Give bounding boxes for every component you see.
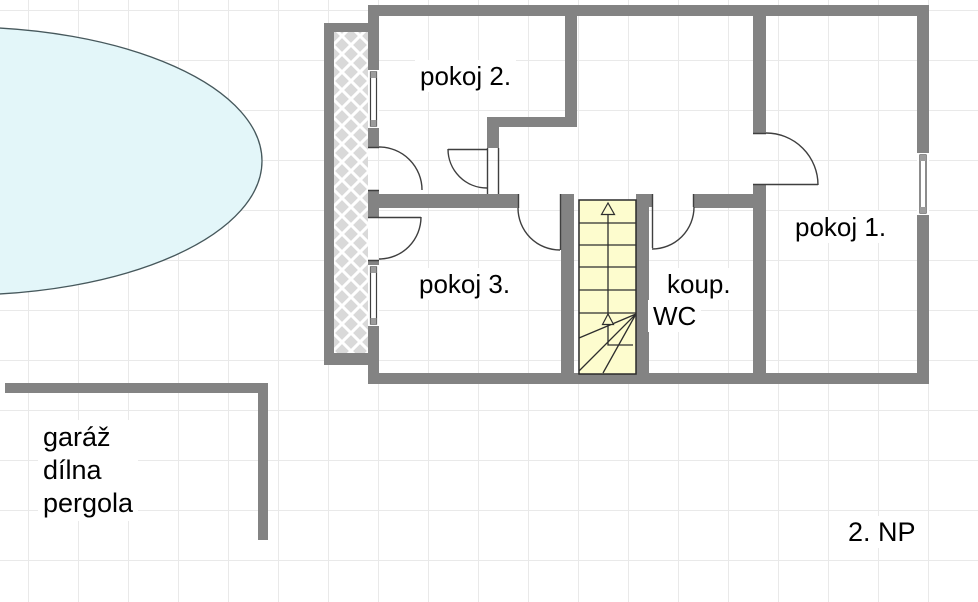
room-label-koupelna: koup. (662, 268, 736, 300)
outbuilding-label-garaz: garáž (43, 421, 133, 454)
wall-stairs-right (636, 194, 649, 384)
balcony (324, 23, 368, 365)
wall-top (368, 5, 929, 16)
floor-label: 2. NP (843, 516, 921, 548)
balcony-wall-bottom (324, 353, 368, 365)
room-label-pokoj-1: pokoj 1. (790, 211, 891, 243)
wall-room2-right (565, 16, 577, 127)
wall-room2-lower (487, 117, 577, 127)
wall-room2-hall (487, 127, 499, 148)
wall-room3-right (561, 194, 574, 384)
wall-corridor-south (368, 194, 518, 208)
floor-plan-canvas: pokoj 2. pokoj 1. pokoj 3. koup. WC gará… (0, 0, 978, 602)
window-room1 (917, 153, 929, 215)
balcony-hatch (334, 32, 368, 353)
room-label-pokoj-2: pokoj 2. (415, 60, 516, 92)
wall-room1-left-lower (753, 185, 766, 384)
room-label-pokoj-3: pokoj 3. (414, 268, 515, 300)
outbuilding-label: garáž dílna pergola (38, 420, 138, 521)
room-label-wc: WC (648, 300, 701, 332)
window-room2 (368, 70, 379, 128)
wall-room1-left-upper (753, 16, 766, 133)
window-room3 (368, 265, 379, 326)
staircase (579, 200, 636, 374)
balcony-wall-top (324, 23, 368, 32)
outbuilding-label-dilna: dílna (43, 454, 133, 487)
balcony-wall-left (324, 23, 334, 365)
outbuilding-label-pergola: pergola (43, 487, 133, 520)
